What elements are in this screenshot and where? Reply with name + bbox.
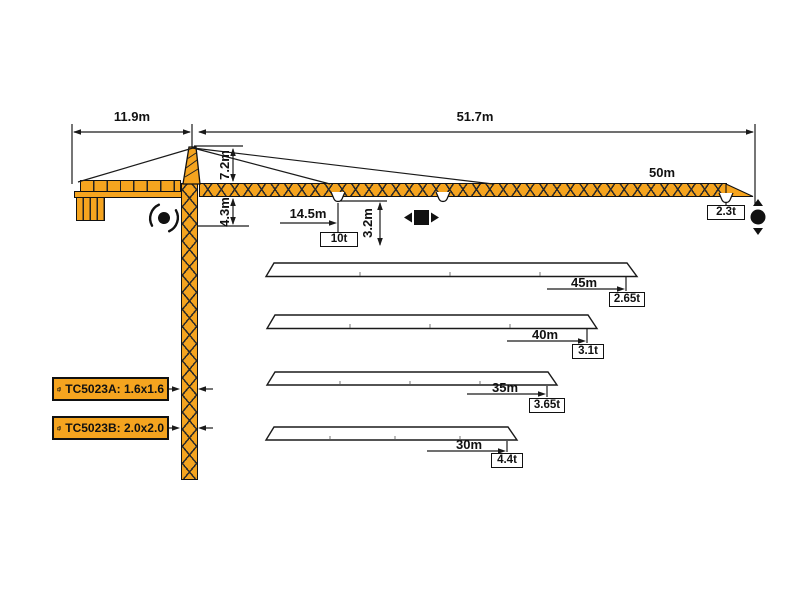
crane-dimension-diagram: 11.9m 51.7m 7.2m 4.3m 3.2m 14.5m 50m 10t… [0,0,800,600]
trolley-icon [404,210,439,225]
mast-section-icon [57,421,61,436]
tower-head-height-label: 7.2m [218,147,232,183]
variant-length-40m: 40m [517,328,573,342]
variant-load-45m: 2.65t [609,292,645,307]
variant-load-35m: 3.65t [529,398,565,413]
working-span-label: 51.7m [440,110,510,124]
slewing-icon [147,203,180,232]
jib-offset-height-label: 4.3m [218,194,232,230]
variant-length-30m: 30m [441,438,497,452]
diagram-linework [0,0,800,600]
tip-load-box-50m: 2.3t [707,205,745,220]
variant-load-40m: 3.1t [572,344,604,359]
variant-length-35m: 35m [477,381,533,395]
tower-head [183,147,200,184]
jib-profile-ticks [330,272,540,440]
hoist-icon [751,199,766,235]
mast-section-box-b: TC5023B: 2.0x2.0 [52,416,169,440]
max-load-radius-label: 14.5m [282,207,334,221]
mast-section-label-b: TC5023B: 2.0x2.0 [65,421,164,435]
counter-jib-length-label: 11.9m [97,110,167,124]
main-jib-length-label: 50m [639,166,685,180]
trolley-hangers [331,192,733,202]
hook-clearance-label: 3.2m [361,205,375,241]
max-hook-load-box: 10t [320,232,358,247]
mast-section-label-a: TC5023A: 1.6x1.6 [65,382,164,396]
variant-load-30m: 4.4t [491,453,523,468]
mast-section-box-a: TC5023A: 1.6x1.6 [52,377,169,401]
mast-section-icon [57,382,61,397]
variant-length-45m: 45m [556,276,612,290]
tie-rods [78,148,493,184]
